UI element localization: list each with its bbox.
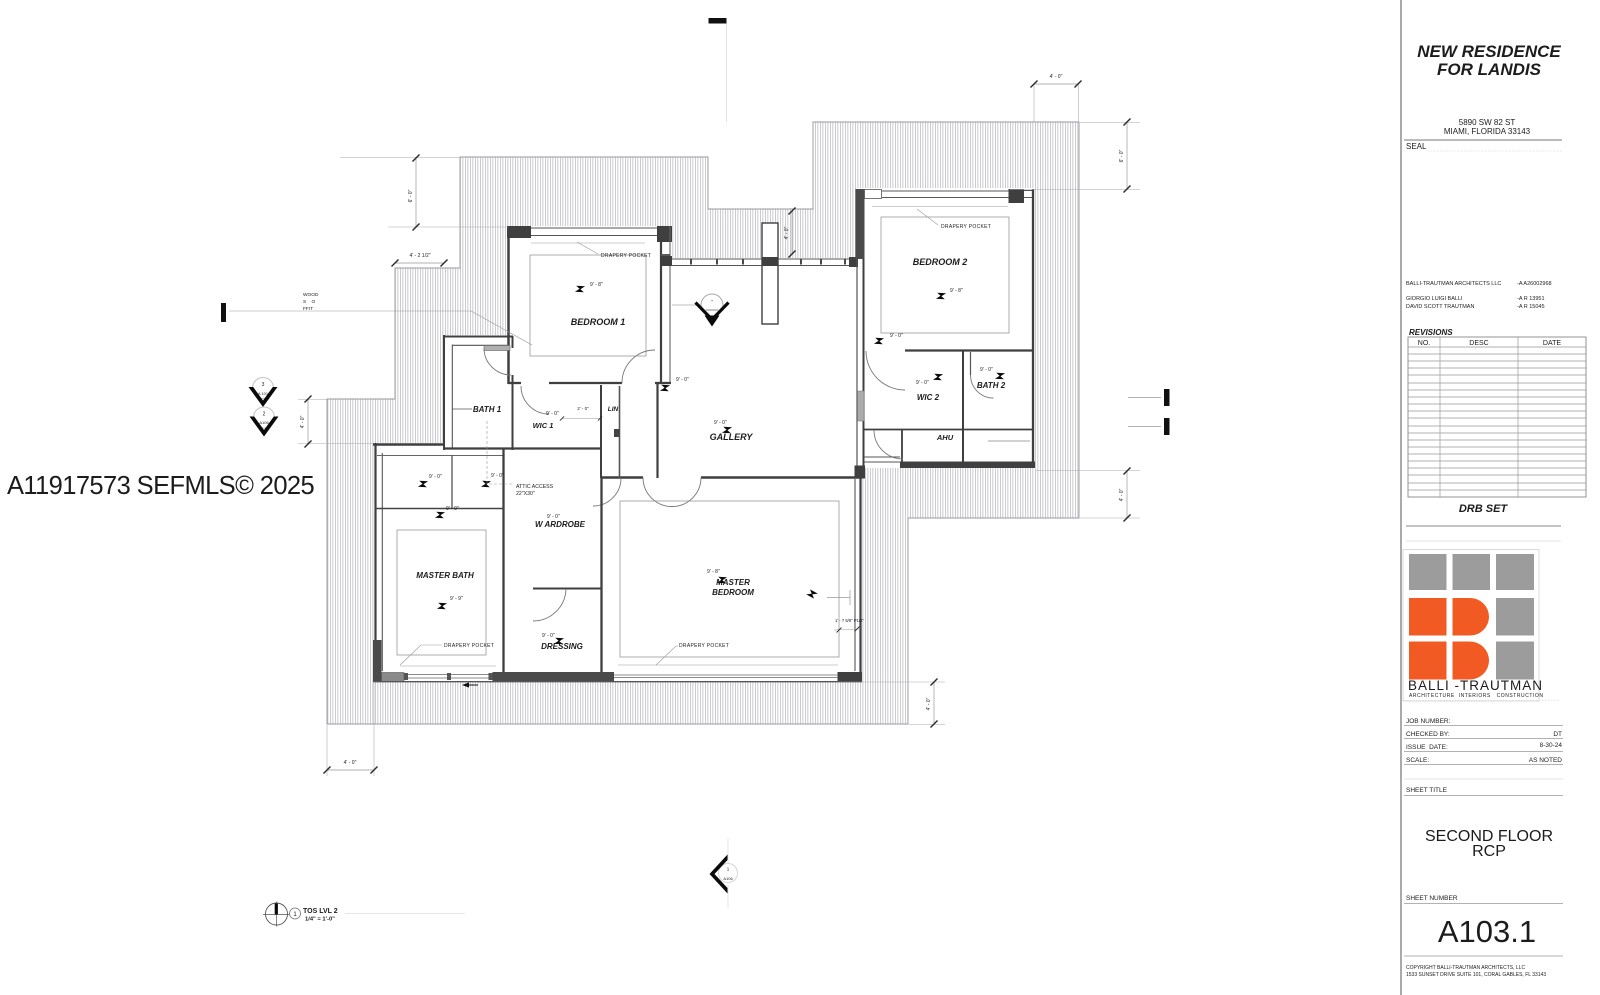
svg-text:BEDROOM 2: BEDROOM 2 <box>913 257 968 267</box>
svg-text:A103.1: A103.1 <box>1438 914 1536 949</box>
svg-text:4' - 0": 4' - 0" <box>784 226 790 239</box>
svg-text:SEAL: SEAL <box>1406 142 1427 151</box>
svg-text:WOOD: WOOD <box>303 292 319 298</box>
svg-text:CHECKED BY:: CHECKED BY: <box>1406 731 1450 738</box>
svg-text:3: 3 <box>262 382 265 388</box>
svg-text:S O: S O <box>303 299 316 305</box>
svg-text:MIAMI, FLORIDA 33143: MIAMI, FLORIDA 33143 <box>1444 127 1531 136</box>
svg-text:SHEET TITLE: SHEET TITLE <box>1406 787 1448 794</box>
svg-text:1' - 7 5/8" P1/2": 1' - 7 5/8" P1/2" <box>835 618 864 623</box>
svg-text:BATH 2: BATH 2 <box>977 381 1006 390</box>
svg-text:-A R 15045: -A R 15045 <box>1517 304 1545 310</box>
svg-text:4' - 0": 4' - 0" <box>300 415 306 428</box>
svg-text:BEDROOM 1: BEDROOM 1 <box>571 317 626 327</box>
svg-text:NEW RESIDENCE: NEW RESIDENCE <box>1417 42 1561 61</box>
svg-text:COPYRIGHT BALLI-TRAUTMAN ARCHI: COPYRIGHT BALLI-TRAUTMAN ARCHITECTS, LLC <box>1406 965 1525 971</box>
svg-text:ISSUE DATE:: ISSUE DATE: <box>1406 744 1448 751</box>
svg-text:6' - 0": 6' - 0" <box>1119 149 1125 162</box>
svg-text:9' - 0": 9' - 0" <box>916 380 929 386</box>
svg-text:9' - 0": 9' - 0" <box>980 367 993 373</box>
svg-text:RCP: RCP <box>1472 843 1506 860</box>
svg-text:1533 SUNSET DRIVE SUITE 101, C: 1533 SUNSET DRIVE SUITE 101, CORAL GABLE… <box>1406 972 1546 978</box>
svg-text:-A A26002968: -A A26002968 <box>1517 281 1552 287</box>
svg-text:9' - 0": 9' - 0" <box>676 377 689 383</box>
svg-text:9' - 0": 9' - 0" <box>546 411 559 417</box>
svg-text:4' - 0": 4' - 0" <box>1050 74 1063 80</box>
svg-text:A11917573 SEFMLS© 2025: A11917573 SEFMLS© 2025 <box>7 472 314 500</box>
svg-text:AHU: AHU <box>936 433 954 442</box>
svg-text:REVISIONS: REVISIONS <box>1409 328 1453 337</box>
svg-text:MASTER BATH: MASTER BATH <box>416 571 474 580</box>
svg-text:6' - 0": 6' - 0" <box>408 189 414 202</box>
svg-text:9' - 0": 9' - 0" <box>890 333 903 339</box>
svg-text:DESC: DESC <box>1469 340 1488 347</box>
svg-text:9' - 8": 9' - 8" <box>707 569 720 575</box>
svg-text:DATE: DATE <box>1543 340 1561 347</box>
svg-text:DRAPERY POCKET: DRAPERY POCKET <box>679 643 729 649</box>
svg-text:DRAPERY POCKET: DRAPERY POCKET <box>444 643 494 649</box>
svg-text:9' - 0": 9' - 0" <box>491 473 504 479</box>
svg-text:4' - 0": 4' - 0" <box>1119 488 1125 501</box>
svg-text:9' - 0": 9' - 0" <box>446 506 459 512</box>
svg-text:W ARDROBE: W ARDROBE <box>535 520 586 529</box>
svg-text:9' - 0": 9' - 0" <box>429 474 442 480</box>
svg-text:SHEET NUMBER: SHEET NUMBER <box>1406 895 1458 902</box>
svg-text:DRAPERY POCKET: DRAPERY POCKET <box>601 253 651 259</box>
svg-text:GIORGIO LUIGI BALLI: GIORGIO LUIGI BALLI <box>1406 296 1463 302</box>
svg-text:TOS LVL 2: TOS LVL 2 <box>303 908 338 915</box>
svg-text:DRAPERY POCKET: DRAPERY POCKET <box>941 224 991 230</box>
svg-text:22"X30": 22"X30" <box>516 491 535 497</box>
svg-text:A106: A106 <box>259 420 269 425</box>
svg-text:5890 SW 82 ST: 5890 SW 82 ST <box>1459 118 1516 127</box>
svg-text:9' - 8": 9' - 8" <box>590 282 603 288</box>
svg-text:9' - 0": 9' - 0" <box>547 514 560 520</box>
svg-text:4' - 2 1/2": 4' - 2 1/2" <box>409 253 430 259</box>
svg-text:4' - 0": 4' - 0" <box>926 697 932 710</box>
svg-text:9' - 0": 9' - 0" <box>542 633 555 639</box>
svg-text:8-30-24: 8-30-24 <box>1540 742 1563 749</box>
svg-text:DAVID SCOTT TRAUTMAN: DAVID SCOTT TRAUTMAN <box>1406 304 1474 310</box>
svg-text:AS NOTED: AS NOTED <box>1529 757 1563 764</box>
svg-text:ATTIC ACCESS: ATTIC ACCESS <box>516 484 554 490</box>
svg-text:DRB SET: DRB SET <box>1459 503 1509 515</box>
svg-text:9' - 9": 9' - 9" <box>450 596 463 602</box>
svg-text:9' - 0": 9' - 0" <box>714 420 727 426</box>
svg-text:FOR LANDIS: FOR LANDIS <box>1437 60 1542 79</box>
svg-text:2' - 0": 2' - 0" <box>577 406 589 411</box>
svg-text:2: 2 <box>263 412 266 418</box>
svg-text:BALLI -TRAUTMAN: BALLI -TRAUTMAN <box>1408 678 1543 693</box>
svg-text:A106: A106 <box>723 876 733 881</box>
svg-text:BATH 1: BATH 1 <box>473 405 502 414</box>
svg-text:LIN: LIN <box>608 406 619 413</box>
svg-text:-A R 13951: -A R 13951 <box>1517 296 1545 302</box>
svg-text:ARCHITECTURE INTERIORS CONS: ARCHITECTURE INTERIORS CONSTRUCTION <box>1409 693 1544 699</box>
svg-text:GALLERY: GALLERY <box>710 432 754 442</box>
svg-text:JOB NUMBER:: JOB NUMBER: <box>1406 718 1451 725</box>
svg-text:4' - 0": 4' - 0" <box>344 760 357 766</box>
svg-text:9' - 8": 9' - 8" <box>950 288 963 294</box>
svg-text:DT: DT <box>1553 731 1562 738</box>
svg-text:NO.: NO. <box>1418 340 1431 347</box>
svg-text:1/4" = 1'-0": 1/4" = 1'-0" <box>305 917 335 923</box>
svg-text:SCALE:: SCALE: <box>1406 757 1429 764</box>
svg-text:A 101: A 101 <box>258 391 269 396</box>
svg-text:DRESSING: DRESSING <box>541 642 583 651</box>
svg-text:BEDROOM: BEDROOM <box>712 588 754 597</box>
svg-text:WIC 1: WIC 1 <box>533 421 554 430</box>
svg-text:WIC 2: WIC 2 <box>917 393 940 402</box>
svg-text:BALLI-TRAUTMAN ARCHITECTS LLC: BALLI-TRAUTMAN ARCHITECTS LLC <box>1406 281 1501 287</box>
